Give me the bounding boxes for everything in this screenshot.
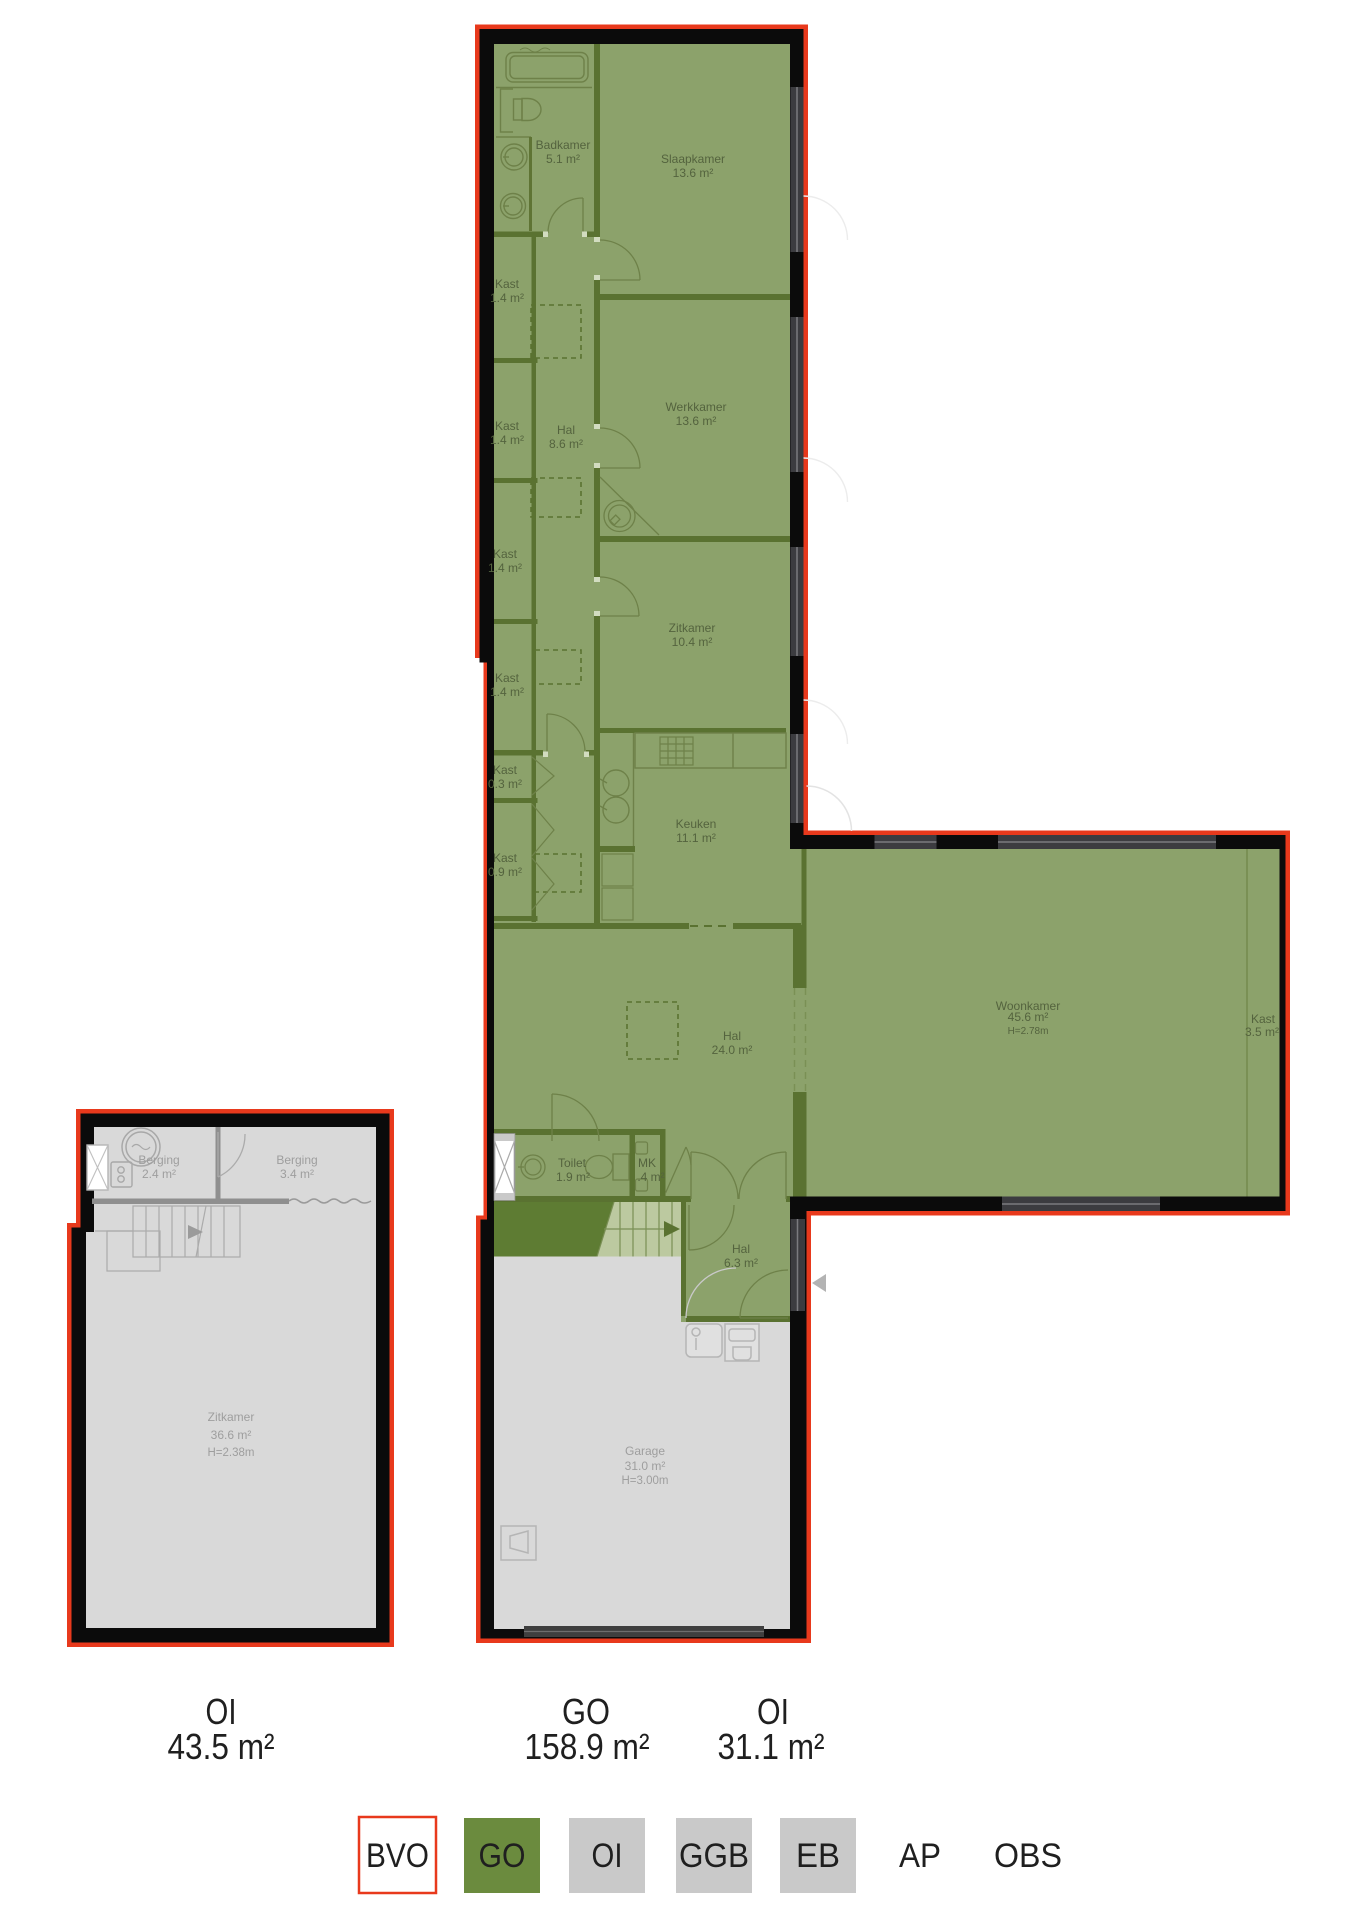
svg-text:2.4 m²: 2.4 m²	[142, 1167, 176, 1181]
svg-text:H=2.38m: H=2.38m	[208, 1447, 255, 1459]
svg-text:H=2.78m: H=2.78m	[1008, 1026, 1049, 1037]
svg-text:Zitkamer: Zitkamer	[669, 621, 716, 635]
svg-text:Keuken: Keuken	[676, 817, 717, 831]
svg-text:43.5 m²: 43.5 m²	[168, 1726, 275, 1767]
svg-text:Kast: Kast	[493, 547, 518, 561]
svg-text:OI: OI	[592, 1837, 623, 1875]
svg-text:8.6 m²: 8.6 m²	[549, 437, 583, 451]
svg-text:1.4 m²: 1.4 m²	[488, 561, 522, 575]
svg-text:3.5 m²: 3.5 m²	[1245, 1025, 1279, 1039]
svg-text:158.9 m²: 158.9 m²	[525, 1726, 650, 1767]
svg-text:13.6 m²: 13.6 m²	[676, 414, 717, 428]
svg-text:Garage: Garage	[625, 1444, 665, 1458]
svg-text:36.6 m²: 36.6 m²	[211, 1428, 252, 1442]
svg-text:EB: EB	[796, 1837, 840, 1875]
svg-text:Kast: Kast	[493, 851, 518, 865]
svg-text:GO: GO	[479, 1837, 526, 1875]
svg-text:GGB: GGB	[679, 1837, 749, 1875]
svg-text:31.0 m²: 31.0 m²	[625, 1459, 666, 1473]
svg-text:10.4 m²: 10.4 m²	[672, 635, 713, 649]
svg-text:AP: AP	[899, 1837, 941, 1875]
svg-text:Hal: Hal	[723, 1029, 741, 1043]
svg-text:13.6 m²: 13.6 m²	[673, 166, 714, 180]
svg-text:Berging: Berging	[138, 1153, 179, 1167]
svg-text:Zitkamer: Zitkamer	[208, 1410, 255, 1424]
svg-text:Kast: Kast	[1251, 1012, 1276, 1026]
svg-text:.4 m²: .4 m²	[637, 1170, 664, 1184]
svg-text:Kast: Kast	[495, 277, 520, 291]
svg-text:31.1 m²: 31.1 m²	[718, 1726, 825, 1767]
svg-text:Toilet: Toilet	[558, 1156, 587, 1170]
svg-text:45.6 m²: 45.6 m²	[1008, 1010, 1049, 1024]
svg-text:1.4 m²: 1.4 m²	[490, 291, 524, 305]
svg-text:Hal: Hal	[557, 423, 575, 437]
svg-text:6.3 m²: 6.3 m²	[724, 1256, 758, 1270]
svg-text:Kast: Kast	[495, 671, 520, 685]
svg-text:1.9 m²: 1.9 m²	[556, 1170, 590, 1184]
svg-text:Hal: Hal	[732, 1242, 750, 1256]
svg-text:24.0 m²: 24.0 m²	[712, 1043, 753, 1057]
svg-text:Berging: Berging	[276, 1153, 317, 1167]
svg-text:5.1 m²: 5.1 m²	[546, 152, 580, 166]
svg-text:BVO: BVO	[366, 1837, 429, 1875]
svg-text:0.3 m²: 0.3 m²	[488, 777, 522, 791]
svg-text:OBS: OBS	[994, 1837, 1062, 1875]
svg-text:Kast: Kast	[495, 419, 520, 433]
svg-text:1.4 m²: 1.4 m²	[490, 433, 524, 447]
svg-text:H=3.00m: H=3.00m	[622, 1475, 669, 1487]
svg-text:Slaapkamer: Slaapkamer	[661, 152, 725, 166]
svg-text:Kast: Kast	[493, 763, 518, 777]
svg-text:Badkamer: Badkamer	[536, 138, 591, 152]
svg-text:0.9 m²: 0.9 m²	[488, 865, 522, 879]
svg-text:1.4 m²: 1.4 m²	[490, 685, 524, 699]
svg-text:11.1 m²: 11.1 m²	[676, 831, 716, 845]
svg-text:3.4 m²: 3.4 m²	[280, 1167, 314, 1181]
svg-text:MK: MK	[638, 1156, 656, 1170]
svg-text:Werkkamer: Werkkamer	[665, 400, 726, 414]
